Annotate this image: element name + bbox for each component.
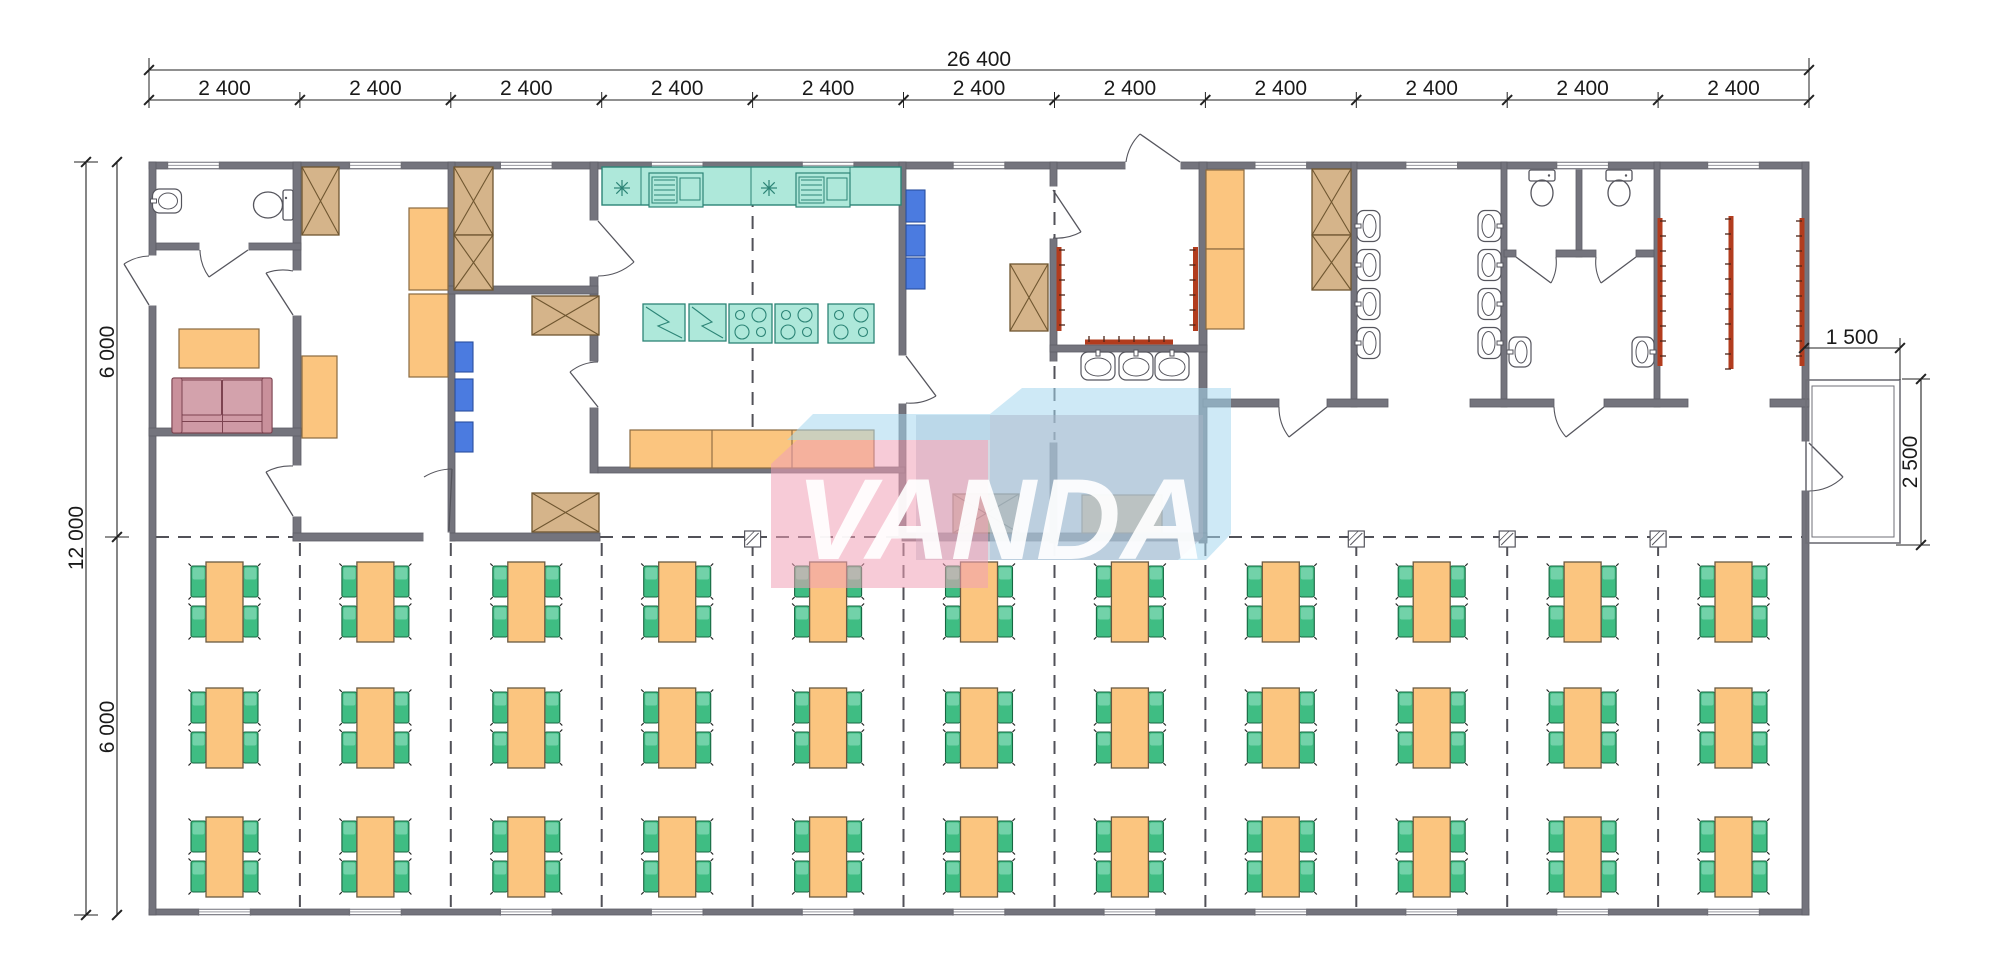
svg-text:2 400: 2 400: [198, 77, 251, 100]
svg-text:1 500: 1 500: [1826, 326, 1879, 349]
svg-text:2 400: 2 400: [500, 77, 553, 100]
svg-text:2 500: 2 500: [1899, 436, 1922, 489]
svg-text:2 400: 2 400: [651, 77, 704, 100]
svg-text:6 000: 6 000: [96, 326, 119, 379]
svg-text:6 000: 6 000: [96, 701, 119, 754]
svg-text:26 400: 26 400: [947, 48, 1011, 71]
svg-text:2 400: 2 400: [349, 77, 402, 100]
svg-text:2 400: 2 400: [802, 77, 855, 100]
svg-text:2 400: 2 400: [953, 77, 1006, 100]
svg-text:12 000: 12 000: [65, 506, 88, 570]
svg-text:2 400: 2 400: [1556, 77, 1609, 100]
svg-text:2 400: 2 400: [1405, 77, 1458, 100]
svg-text:VANDA: VANDA: [796, 456, 1206, 584]
svg-text:2 400: 2 400: [1255, 77, 1308, 100]
svg-text:2 400: 2 400: [1707, 77, 1760, 100]
svg-text:2 400: 2 400: [1104, 77, 1157, 100]
